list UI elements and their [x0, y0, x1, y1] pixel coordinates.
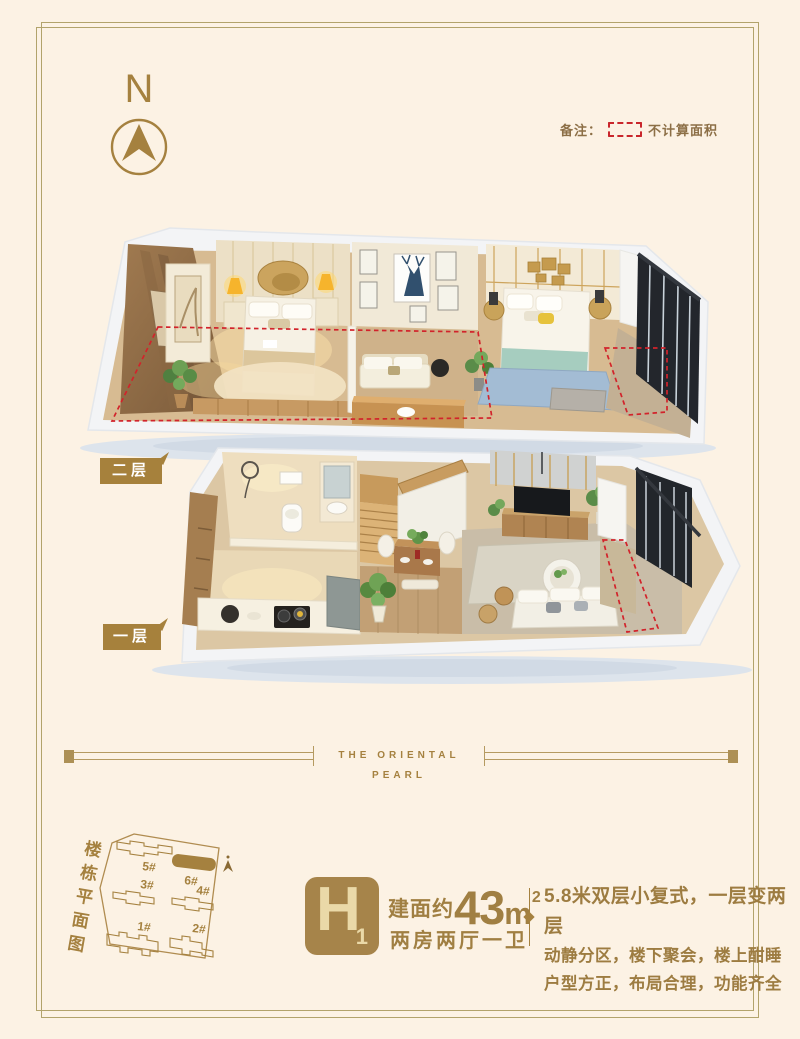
floor-tag-upper: 二层 [100, 458, 162, 484]
bench [550, 388, 606, 412]
armchair [431, 359, 449, 377]
mini-north-arrow-icon [223, 856, 233, 873]
building-6-highlighted [171, 853, 216, 871]
north-compass: N [103, 62, 175, 182]
divider-line [484, 759, 728, 760]
unit-layout: 两房两厅一卫 [390, 924, 528, 953]
building-4 [172, 897, 213, 911]
note-label: 备注： [560, 120, 602, 139]
lamp [595, 290, 604, 303]
compass-arrow-icon [122, 124, 156, 161]
plan-shadow-core [227, 659, 677, 677]
not-counted-area-swatch [608, 122, 642, 137]
unit-description: 5.8米双层小复式，一层变两层 动静分区，楼下聚会，楼上酣睡 户型方正，布局合理… [544, 882, 800, 998]
tv-wall [490, 450, 596, 490]
brochure-page: N 备注： 不计算面积 [0, 0, 800, 1039]
building-5 [117, 841, 172, 856]
lower-floor-plan [122, 438, 752, 693]
divider-cap-right [728, 750, 738, 763]
divider-title: THE ORIENTAL PEARL [313, 746, 485, 766]
stair-landing [360, 474, 398, 506]
lamp [489, 292, 498, 305]
building-1 [107, 932, 158, 956]
compass-n-letter: N [125, 67, 154, 111]
unit-badge-sub: 1 [356, 924, 368, 950]
pillow [249, 302, 279, 317]
building-label: 4# [196, 883, 211, 898]
stove [274, 606, 310, 628]
description-line-3: 户型方正，布局合理，功能齐全 [544, 970, 800, 998]
pillar [598, 478, 626, 542]
area-superscript: 2 [532, 889, 541, 906]
wall-sculpture-core [272, 273, 300, 291]
dining-chair [439, 532, 455, 554]
cushion [268, 319, 290, 329]
media-console [352, 396, 466, 428]
description-line-1: 5.8米双层小复式，一层变两层 [544, 882, 800, 942]
building-label: 3# [140, 877, 155, 892]
toilet-seat [285, 509, 299, 519]
dining-bench [402, 580, 438, 589]
unit-badge: H 1 [305, 877, 379, 955]
side-table [495, 587, 513, 605]
note-text: 不计算面积 [648, 120, 718, 139]
divider-line [74, 759, 313, 760]
nightstand [314, 298, 338, 326]
kitchen-sink [221, 605, 239, 623]
building-label: 1# [137, 919, 152, 934]
area-prefix: 建面约 [388, 898, 454, 921]
site-plan: 5# 6# 3# 4# 1# 2# [92, 826, 242, 1001]
upper-floor-plan [58, 198, 728, 463]
towels [280, 472, 302, 484]
unit-badge-letter: H [316, 871, 361, 949]
sofa [360, 354, 430, 388]
pillow [282, 304, 312, 319]
divider-line [74, 752, 313, 753]
tv [514, 486, 570, 516]
floor-tag-lower: 一层 [103, 624, 161, 650]
building-label: 2# [192, 921, 207, 936]
bed-tray [263, 340, 277, 348]
dining-chair [378, 535, 394, 557]
plate [247, 612, 261, 620]
deer-art [394, 254, 430, 302]
fridge-cabinet [327, 576, 360, 630]
description-line-2: 动静分区，楼下聚会，楼上酣睡 [544, 942, 800, 970]
mirror [324, 466, 350, 498]
building-label: 5# [142, 859, 157, 874]
building-3 [113, 891, 154, 905]
note-legend: 备注： 不计算面积 [560, 120, 718, 139]
stool [479, 605, 497, 623]
sink [327, 502, 347, 514]
nightstand [224, 302, 246, 328]
divider-line [484, 752, 728, 753]
divider-cap-left [64, 750, 74, 763]
